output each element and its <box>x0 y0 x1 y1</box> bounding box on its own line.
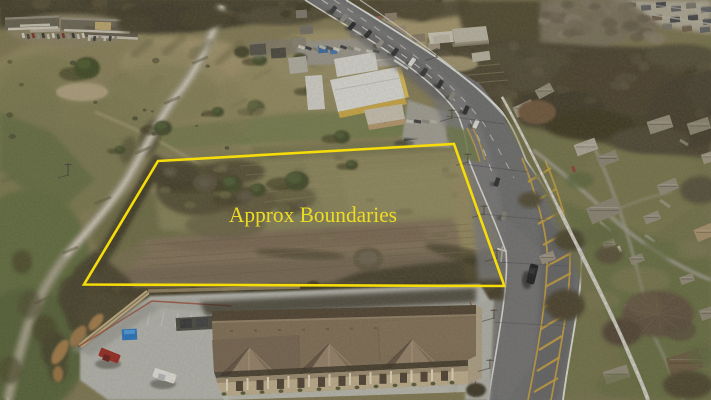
svg-text:Approx Boundaries: Approx Boundaries <box>229 202 397 227</box>
